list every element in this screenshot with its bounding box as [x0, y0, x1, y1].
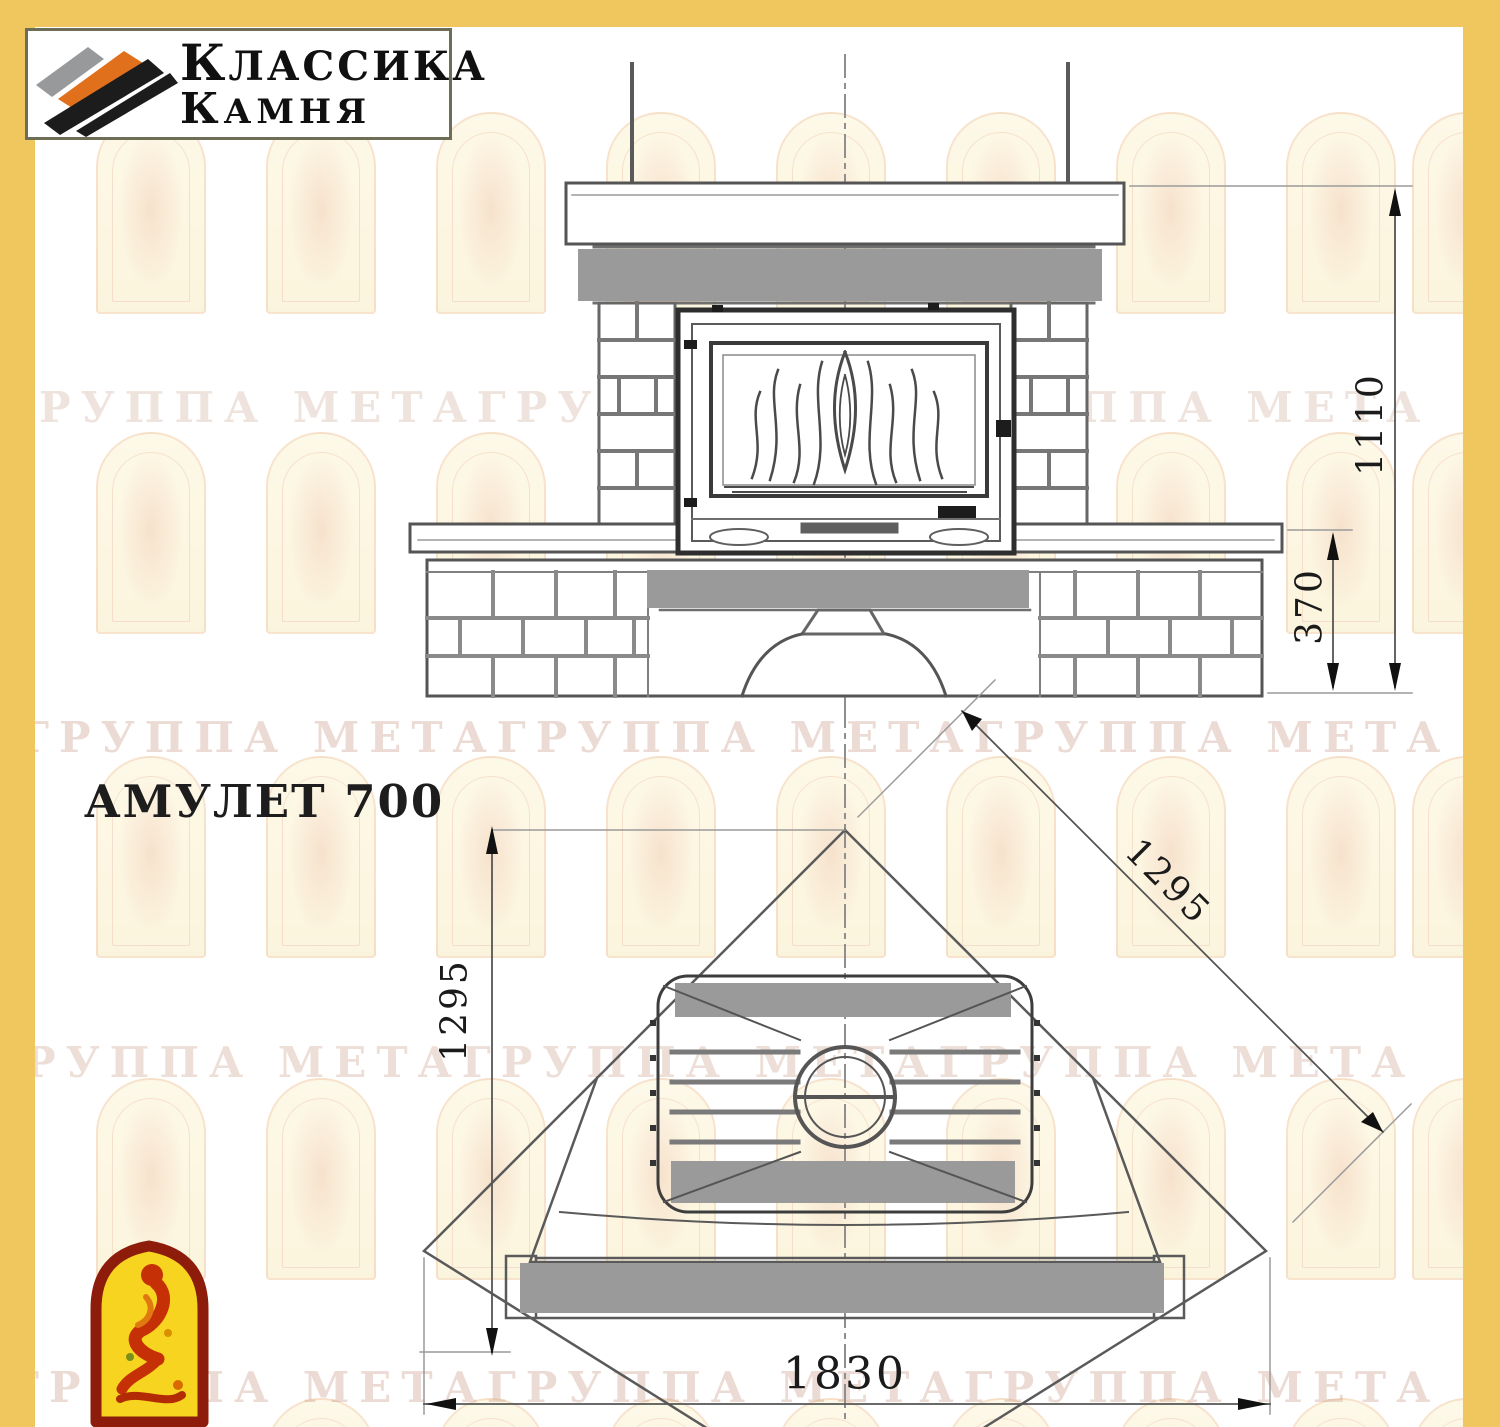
- company-logo: КЛАССИКА КАМНЯ: [25, 28, 452, 140]
- plinth-base: [427, 560, 1262, 696]
- mantel-shelf: [566, 183, 1124, 244]
- front-elevation-view: [410, 55, 1412, 703]
- plan-view: [420, 680, 1411, 1427]
- pilaster-right: [1011, 303, 1087, 531]
- chimney-pipes: [632, 64, 1068, 183]
- logo-line1: КЛАССИКА: [180, 37, 488, 88]
- dim-label-plan-side-left: 1295: [435, 958, 476, 1062]
- logo-line2: КАМНЯ: [180, 88, 488, 131]
- dim-label-plan-width: 1830: [783, 1349, 907, 1400]
- flue-collar: [795, 1047, 895, 1147]
- door-vent-right: [930, 529, 988, 545]
- fireplace-technical-drawing: [0, 0, 1500, 1427]
- dentil-band-base: [660, 589, 1030, 610]
- dim-label-plinth-height: 370: [1290, 567, 1331, 645]
- pilaster-left: [599, 303, 675, 531]
- door-handle: [996, 420, 1011, 437]
- stone-shards-logo-icon: [28, 31, 178, 137]
- mascot-emblem: [86, 1237, 213, 1427]
- model-title: АМУЛЕТ 700: [84, 775, 444, 828]
- dim-label-front-height: 1110: [1351, 372, 1392, 476]
- dimension-line-1295-diagonal: [962, 711, 1383, 1132]
- door-vent-left: [710, 529, 768, 545]
- dentil-band-top: [594, 247, 1094, 303]
- firebox-door: [678, 303, 1014, 553]
- page: ГРУППА МЕТАГРУППА МЕТАГРУППА МЕТАГРУППА …: [0, 0, 1500, 1427]
- logo-text: КЛАССИКА КАМНЯ: [180, 37, 488, 131]
